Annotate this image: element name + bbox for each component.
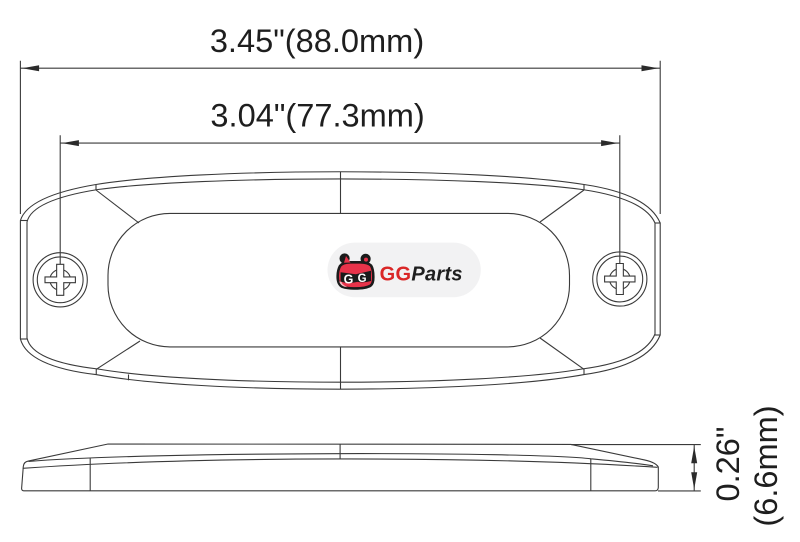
svg-text:G: G [358, 273, 367, 285]
svg-text:3.04"(77.3mm): 3.04"(77.3mm) [210, 96, 424, 133]
svg-text:0.26": 0.26" [709, 427, 746, 502]
svg-text:3.45"(88.0mm): 3.45"(88.0mm) [210, 22, 424, 59]
svg-text:(6.6mm): (6.6mm) [747, 405, 784, 526]
svg-text:G: G [344, 272, 354, 286]
svg-text:GGParts: GGParts [380, 263, 463, 285]
